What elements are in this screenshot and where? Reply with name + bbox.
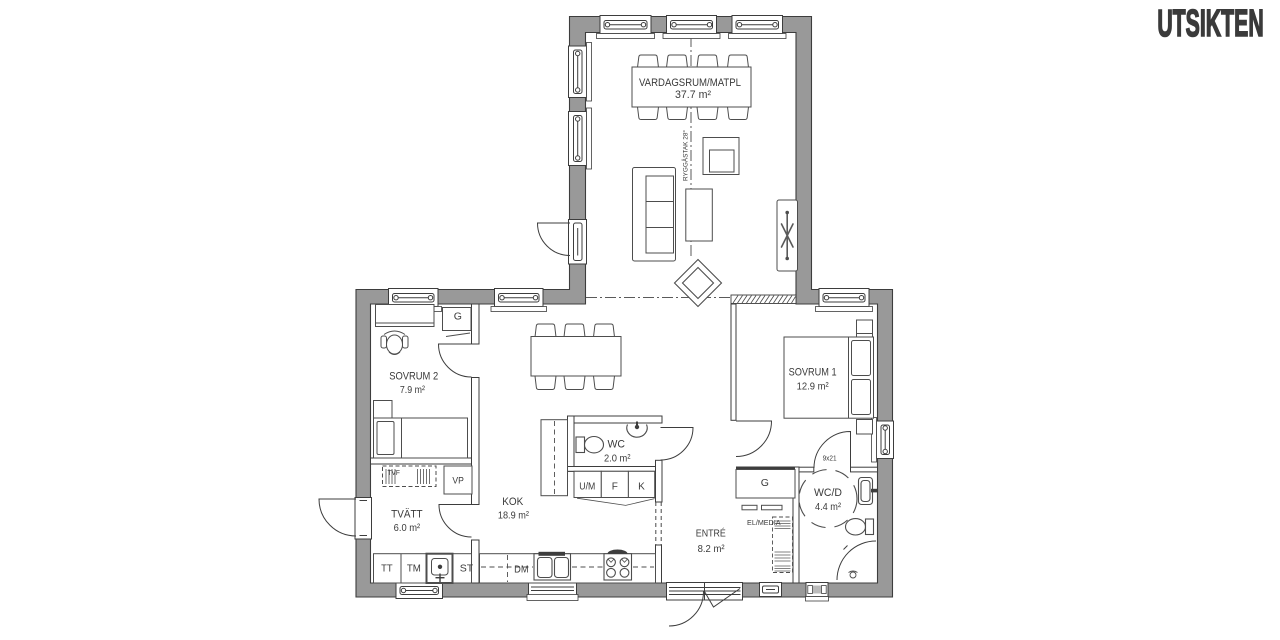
- svg-text:ENTRÉ: ENTRÉ: [696, 527, 726, 540]
- svg-text:K: K: [638, 482, 645, 493]
- svg-text:F: F: [612, 482, 618, 493]
- svg-text:EL/MEDIA: EL/MEDIA: [747, 520, 781, 527]
- svg-text:DM: DM: [514, 565, 529, 576]
- svg-text:7.9 m²: 7.9 m²: [400, 384, 425, 396]
- svg-text:8.2 m²: 8.2 m²: [698, 543, 725, 555]
- svg-text:TVF: TVF: [387, 470, 400, 477]
- svg-text:VARDAGSRUM/MATPL: VARDAGSRUM/MATPL: [639, 77, 741, 89]
- svg-text:U/M: U/M: [579, 482, 595, 493]
- svg-text:ST: ST: [460, 563, 474, 575]
- svg-text:G: G: [454, 311, 462, 323]
- svg-text:TM: TM: [407, 563, 421, 575]
- svg-text:UTSIKTEN: UTSIKTEN: [1157, 1, 1263, 44]
- svg-text:4.4 m²: 4.4 m²: [815, 501, 841, 513]
- svg-text:SOVRUM 1: SOVRUM 1: [789, 367, 837, 379]
- svg-text:TVÄTT: TVÄTT: [391, 508, 423, 520]
- svg-text:WC: WC: [607, 438, 625, 450]
- svg-text:37.7 m²: 37.7 m²: [675, 89, 711, 101]
- svg-text:6.0 m²: 6.0 m²: [394, 522, 421, 534]
- svg-text:G: G: [761, 477, 769, 489]
- svg-text:SOVRUM 2: SOVRUM 2: [389, 370, 438, 382]
- svg-text:18.9 m²: 18.9 m²: [498, 510, 529, 522]
- svg-text:TT: TT: [381, 563, 393, 575]
- svg-text:9x21: 9x21: [823, 454, 837, 463]
- svg-text:12.9 m²: 12.9 m²: [797, 380, 829, 392]
- svg-text:RYGGÅSTAK 28°: RYGGÅSTAK 28°: [681, 130, 690, 181]
- svg-text:VP: VP: [452, 476, 464, 487]
- svg-text:KOK: KOK: [502, 496, 524, 508]
- svg-text:WC/D: WC/D: [814, 487, 842, 499]
- svg-text:2.0 m²: 2.0 m²: [604, 452, 631, 464]
